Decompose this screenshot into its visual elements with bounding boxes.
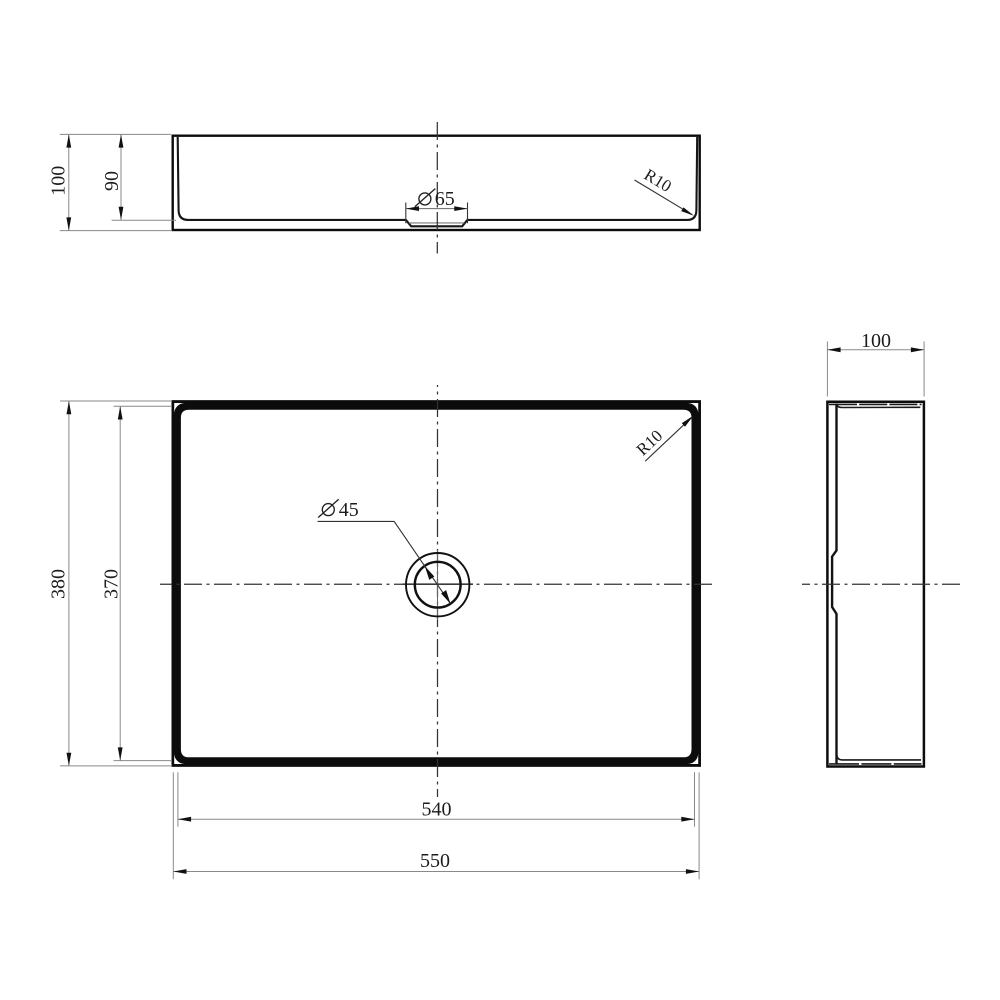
svg-text:540: 540 — [422, 798, 452, 820]
svg-text:90: 90 — [101, 171, 123, 191]
svg-text:65: 65 — [435, 188, 455, 210]
svg-text:380: 380 — [47, 569, 69, 599]
svg-text:550: 550 — [420, 850, 450, 872]
svg-text:100: 100 — [861, 330, 891, 352]
svg-text:100: 100 — [48, 166, 70, 196]
svg-text:370: 370 — [101, 569, 123, 599]
svg-text:45: 45 — [339, 499, 359, 521]
